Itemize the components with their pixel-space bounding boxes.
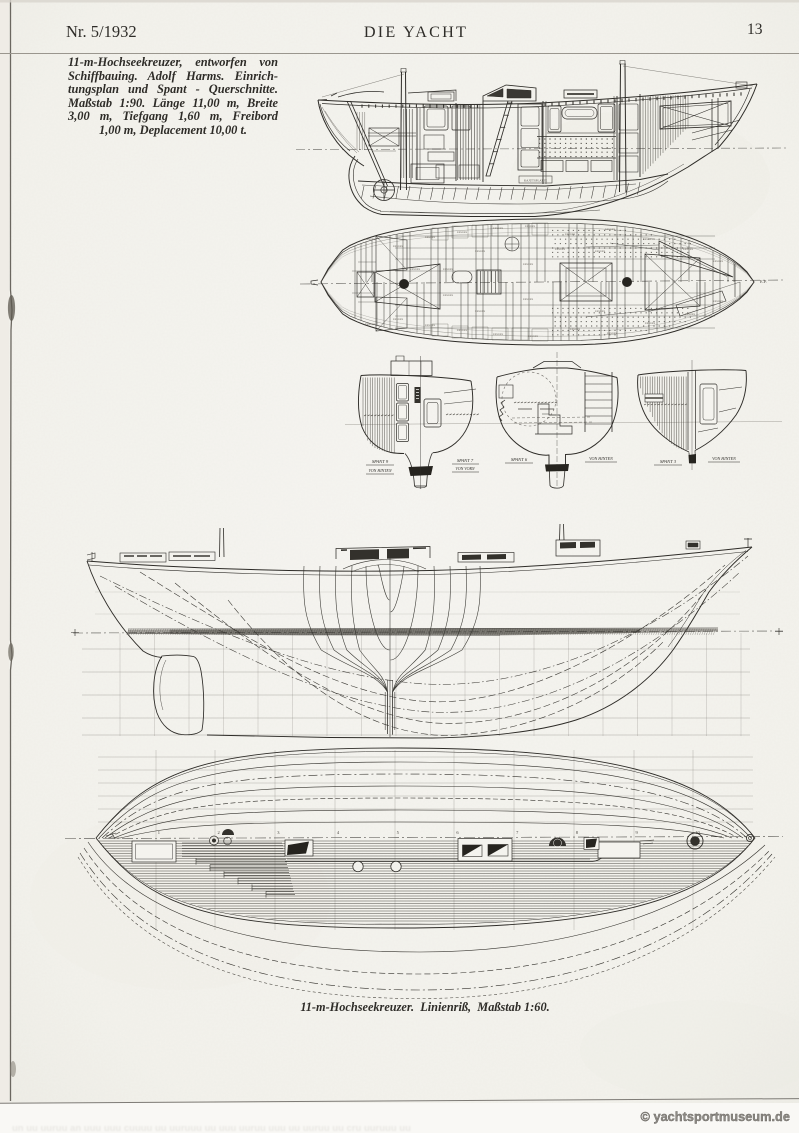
svg-text:SPANT 3: SPANT 3 (660, 459, 677, 464)
svg-text:xxxxxx: xxxxxx (555, 247, 565, 251)
svg-text:2: 2 (218, 830, 220, 835)
svg-text:xxxxxx: xxxxxx (525, 224, 535, 228)
svg-text:un uu uuruu an uuu uuu cuuuu: un uu uuruu an uuu uuu cuuuu uu uuruuu u… (12, 1123, 411, 1133)
svg-text:xxxxxx: xxxxxx (683, 247, 693, 251)
svg-text:VON VORN: VON VORN (455, 466, 475, 471)
svg-text:xxxxxx: xxxxxx (528, 334, 538, 338)
svg-text:xxxxxx: xxxxxx (713, 259, 723, 263)
svg-text:xxxxxx: xxxxxx (443, 267, 453, 271)
svg-text:VON HINTEN: VON HINTEN (368, 468, 391, 473)
svg-text:xxxxxx: xxxxxx (595, 309, 605, 313)
svg-text:KAJÜTSPLATTE: KAJÜTSPLATTE (524, 178, 547, 183)
svg-text:xxxxxx: xxxxxx (425, 323, 435, 327)
svg-text:xxxxxx: xxxxxx (457, 328, 467, 332)
svg-text:xxxxxx: xxxxxx (493, 332, 503, 336)
svg-text:xxxxxx: xxxxxx (565, 232, 575, 236)
svg-text:xxxxxx: xxxxxx (410, 267, 420, 271)
svg-text:xxxxxx: xxxxxx (365, 322, 375, 326)
svg-text:xxxxxx: xxxxxx (570, 327, 580, 331)
svg-text:VON HINTEN: VON HINTEN (589, 456, 613, 461)
svg-text:xxxxxx: xxxxxx (607, 331, 617, 335)
svg-text:Nr. 5/1932: Nr. 5/1932 (66, 22, 137, 41)
svg-text:xxxxxx: xxxxxx (475, 249, 485, 253)
svg-text:VON HINTEN: VON HINTEN (712, 456, 736, 461)
svg-text:xxxxxx: xxxxxx (595, 249, 605, 253)
svg-text:xxxxxx: xxxxxx (425, 235, 435, 239)
svg-text:xxxxxx: xxxxxx (443, 293, 453, 297)
svg-text:xxxxxx: xxxxxx (685, 312, 695, 316)
svg-text:xxxxxx: xxxxxx (643, 237, 653, 241)
svg-text:xxxxxx: xxxxxx (475, 309, 485, 313)
svg-text:© yachtsportmuseum.de: © yachtsportmuseum.de (640, 1109, 790, 1124)
svg-text:xxxxxx: xxxxxx (523, 297, 533, 301)
svg-text:xxxxxx: xxxxxx (493, 226, 503, 230)
svg-text:11-m-Hochseekreuzer. Linienri: 11-m-Hochseekreuzer. Linienriß, Maßstab … (300, 1000, 549, 1014)
svg-text:E.P.: E.P. (760, 279, 767, 284)
svg-text:xxxxxx: xxxxxx (645, 321, 655, 325)
svg-text:xxxxxx: xxxxxx (393, 317, 403, 321)
svg-text:xxxxxx: xxxxxx (605, 227, 615, 231)
svg-text:xxxxxx: xxxxxx (393, 244, 403, 248)
svg-text:SPANT 9: SPANT 9 (372, 459, 389, 464)
svg-text:SPANT 6: SPANT 6 (511, 457, 528, 462)
svg-text:xxxxxx: xxxxxx (713, 299, 723, 303)
svg-text:xxxxxx: xxxxxx (365, 237, 375, 241)
svg-text:xxxxxx: xxxxxx (523, 262, 533, 266)
svg-text:13: 13 (747, 21, 763, 38)
svg-text:SPANT 7: SPANT 7 (457, 458, 474, 463)
svg-text:xxxxxx: xxxxxx (457, 230, 467, 234)
svg-text:DIE YACHT: DIE YACHT (364, 23, 468, 41)
